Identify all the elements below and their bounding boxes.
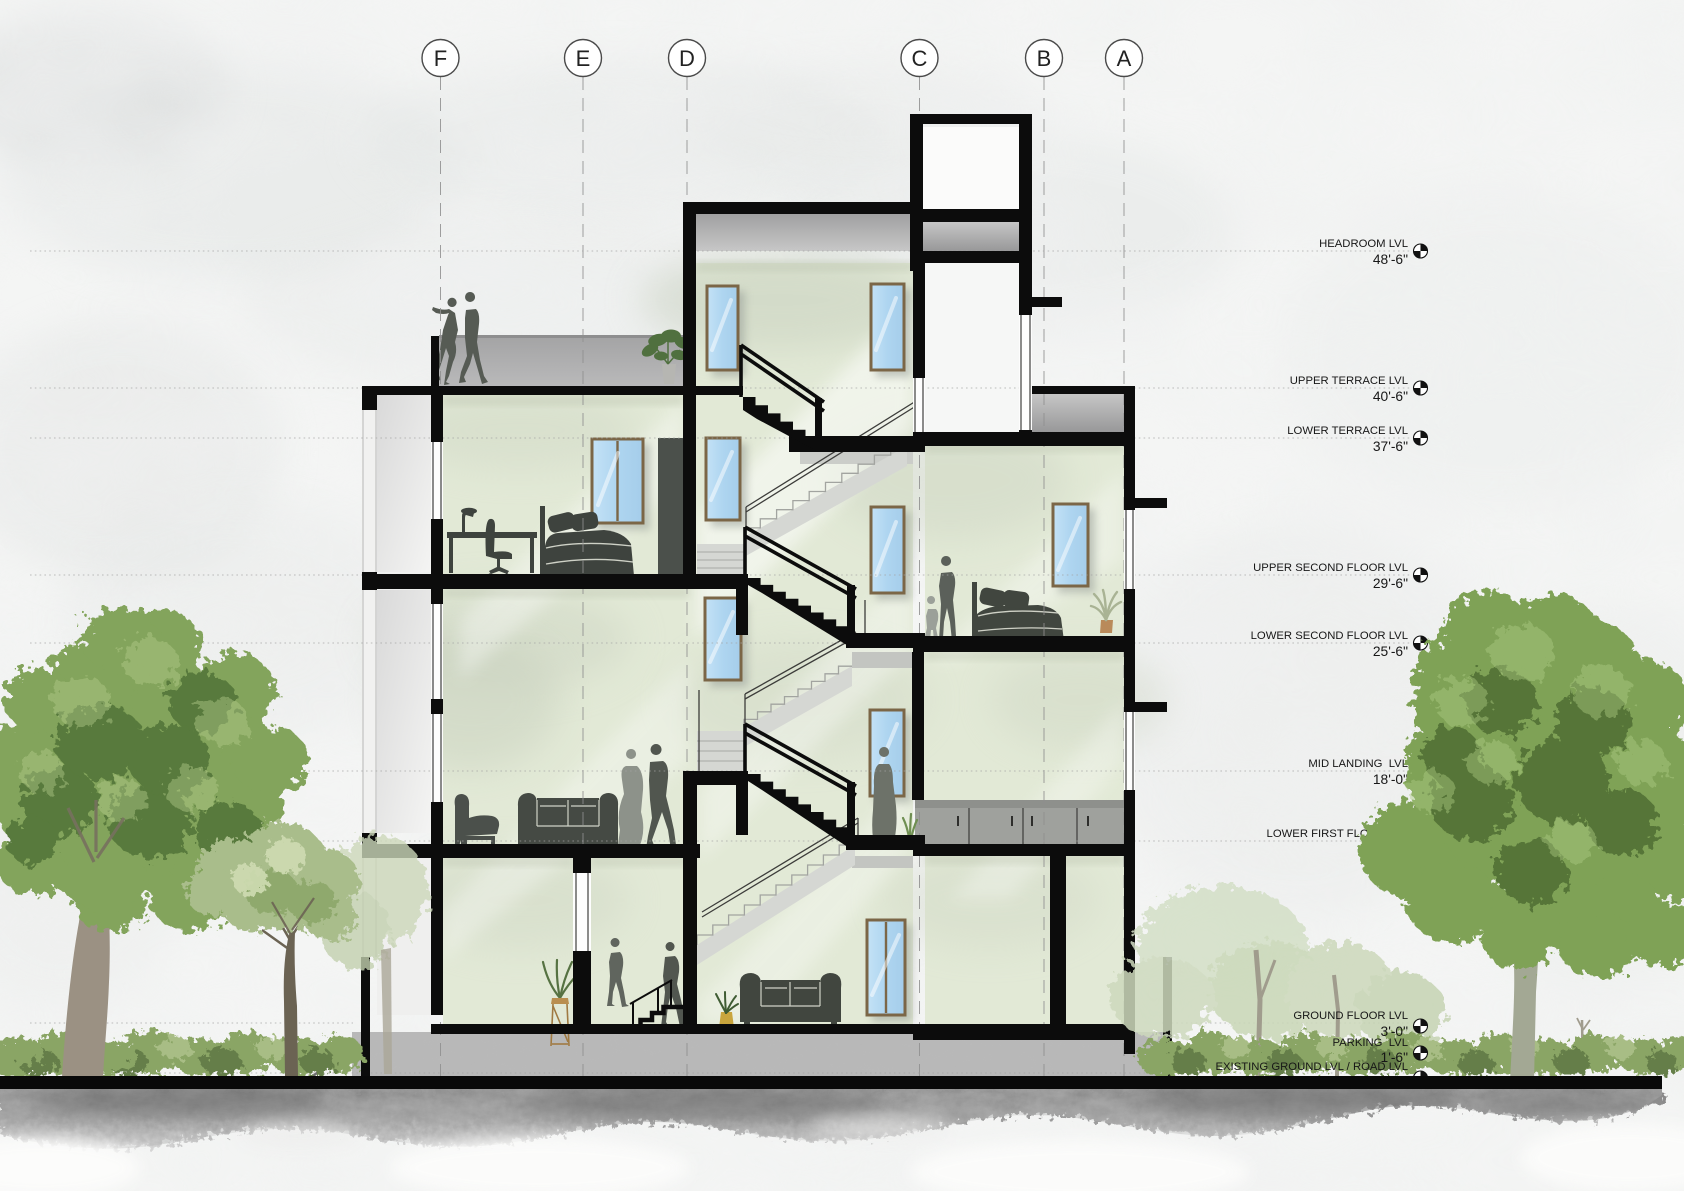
svg-text:LOWER SECOND FLOOR LVL: LOWER SECOND FLOOR LVL	[1251, 630, 1408, 642]
svg-text:D: D	[679, 46, 695, 71]
svg-text:1'-6": 1'-6"	[1381, 1050, 1409, 1065]
svg-text:37'-6": 37'-6"	[1373, 439, 1408, 454]
svg-text:UPPER TERRACE LVL: UPPER TERRACE LVL	[1290, 375, 1408, 387]
svg-text:A: A	[1117, 46, 1132, 71]
svg-text:48'-6": 48'-6"	[1373, 252, 1408, 267]
svg-text:F: F	[434, 46, 447, 71]
svg-text:MID LANDING LVL: MID LANDING LVL	[1308, 758, 1408, 770]
svg-text:LOWER TERRACE LVL: LOWER TERRACE LVL	[1287, 425, 1408, 437]
svg-text:E: E	[576, 46, 591, 71]
svg-text:GROUND FLOOR LVL: GROUND FLOOR LVL	[1293, 1010, 1408, 1022]
svg-text:C: C	[912, 46, 928, 71]
svg-text:EXISTING GROUND LVL / ROAD LVL: EXISTING GROUND LVL / ROAD LVL	[1215, 1061, 1408, 1073]
svg-text:HEADROOM LVL: HEADROOM LVL	[1319, 238, 1408, 250]
svg-text:UPPER SECOND FLOOR LVL: UPPER SECOND FLOOR LVL	[1253, 562, 1408, 574]
svg-text:25'-6": 25'-6"	[1373, 644, 1408, 659]
svg-text:40'-6": 40'-6"	[1373, 389, 1408, 404]
svg-text:29'-6": 29'-6"	[1373, 576, 1408, 591]
svg-text:B: B	[1037, 46, 1052, 71]
svg-text:18'-0": 18'-0"	[1373, 772, 1408, 787]
svg-text:3'-0": 3'-0"	[1381, 1024, 1409, 1039]
